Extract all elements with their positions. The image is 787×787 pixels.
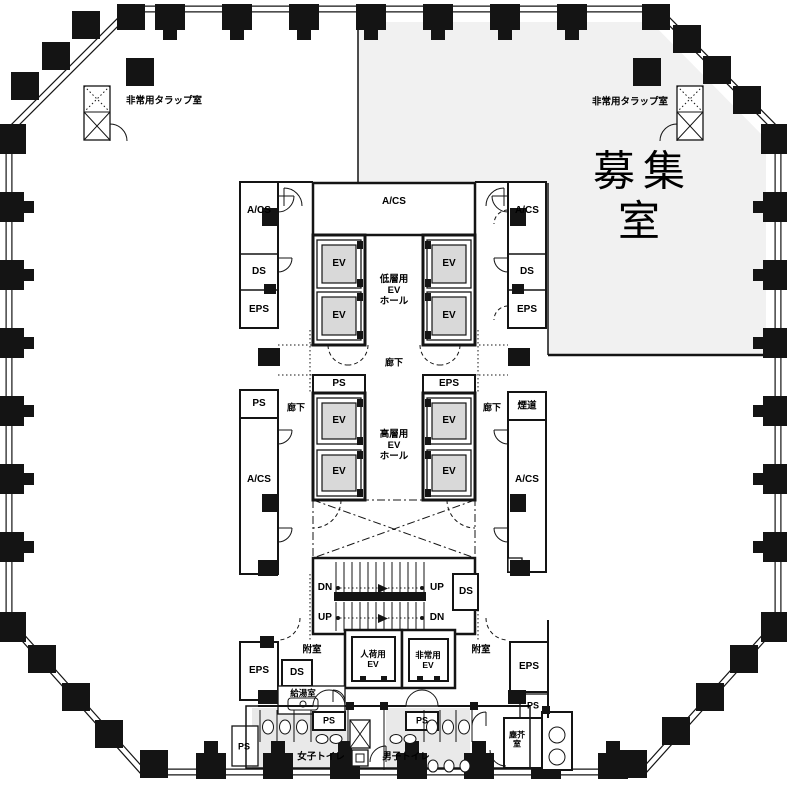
vestibule-and-service-ev bbox=[278, 630, 455, 714]
acs-top-room bbox=[313, 183, 475, 235]
floorplan-linework bbox=[0, 0, 787, 787]
elevator-bank-low bbox=[313, 235, 475, 345]
elevator-bank-high bbox=[313, 375, 475, 500]
floorplan: 非常用タラップ室非常用タラップ室募集室A/CSA/CSA/CSDSDSEPSEP… bbox=[0, 0, 787, 787]
stairs bbox=[313, 558, 478, 634]
crossover-zone bbox=[313, 500, 475, 558]
